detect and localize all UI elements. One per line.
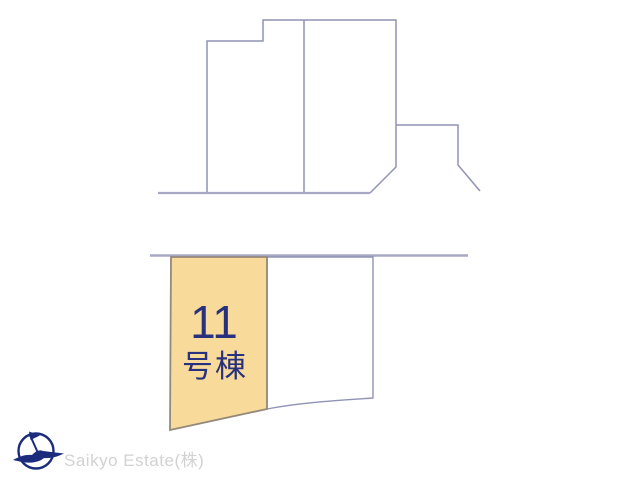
upper-annex-outline xyxy=(396,125,480,191)
lower-plots: 11 号棟 xyxy=(150,256,468,431)
compass-bird-icon xyxy=(13,432,64,469)
adjacent-lot-shape xyxy=(267,257,373,409)
site-plan-drawing: 11 号棟 Saikyo Estate(株) xyxy=(0,0,640,480)
upper-lot-outline xyxy=(207,20,396,193)
footer-brand: Saikyo Estate(株) xyxy=(13,432,204,471)
site-plan-canvas: 11 号棟 Saikyo Estate(株) xyxy=(0,0,640,480)
lot-11-suffix: 号棟 xyxy=(182,349,248,384)
compass-circle xyxy=(19,434,54,469)
lot-11-number: 11 xyxy=(190,296,238,348)
bird-silhouette xyxy=(13,450,64,462)
brand-text: Saikyo Estate(株) xyxy=(64,451,204,470)
upper-plots xyxy=(158,20,480,193)
